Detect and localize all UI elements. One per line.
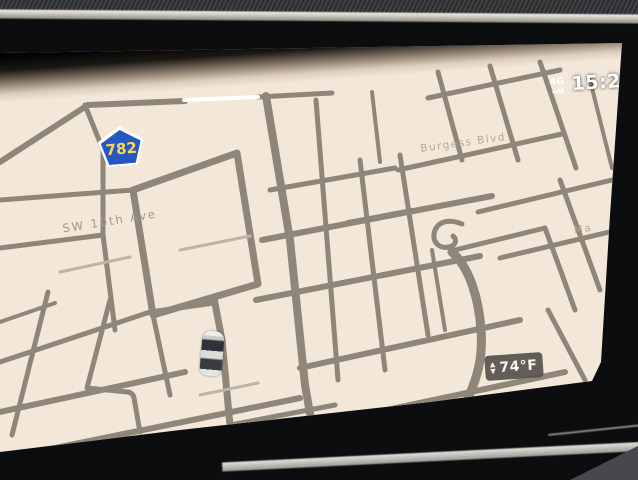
dashboard-photo: SW 10th Ave Burgess Blvd Ma 782 4G 15:28… (0, 0, 638, 480)
infotainment-screen: SW 10th Ave Burgess Blvd Ma 782 4G 15:28… (0, 0, 638, 480)
network-indicator: 4G (550, 77, 566, 93)
clock: 15:28 (571, 69, 635, 95)
silver-trim-bottom (222, 442, 638, 472)
temperature-down-icon[interactable]: ▼ (490, 368, 496, 375)
vehicle-marker-icon (199, 330, 225, 377)
climate-temperature-badge[interactable]: ▲ ▼ 74°F (484, 352, 544, 381)
bezel-edge-highlight (548, 424, 638, 436)
route-shield-number: 782 (105, 135, 138, 160)
signal-bars-icon (552, 87, 563, 93)
network-type-label: 4G (550, 77, 565, 87)
temperature-value: 74°F (499, 357, 538, 376)
